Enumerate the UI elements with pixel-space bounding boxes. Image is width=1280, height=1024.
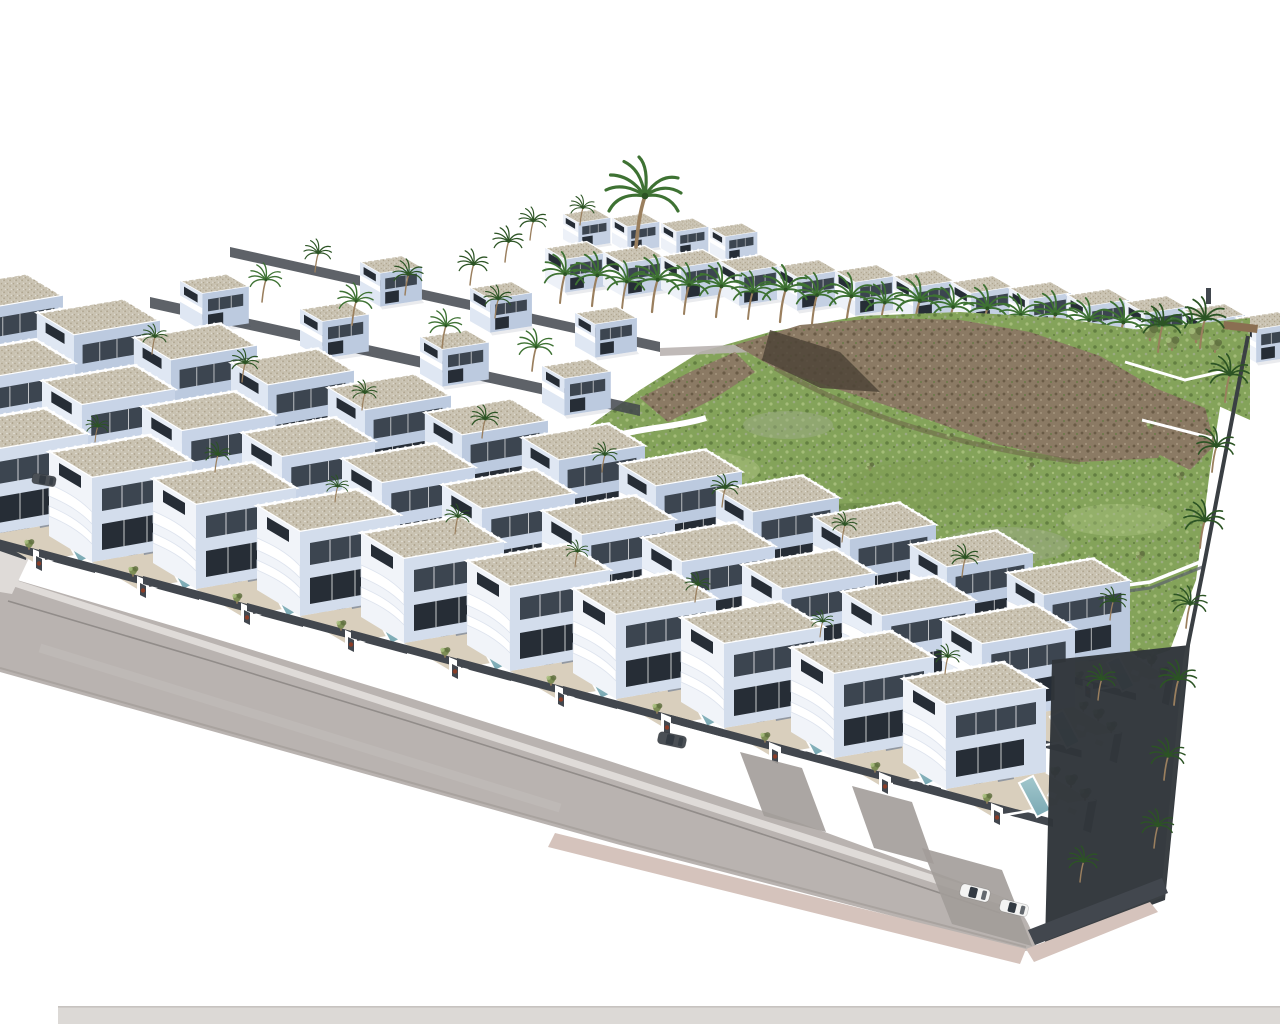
bottom-road-strip — [58, 1006, 1280, 1024]
chimney — [1206, 288, 1211, 304]
aerial-render: Aerial 3D architectural rendering of a h… — [0, 0, 1280, 1024]
bottom-strip-surface — [58, 1006, 1280, 1024]
development-render-svg: Aerial 3D architectural rendering of a h… — [0, 0, 1280, 1024]
